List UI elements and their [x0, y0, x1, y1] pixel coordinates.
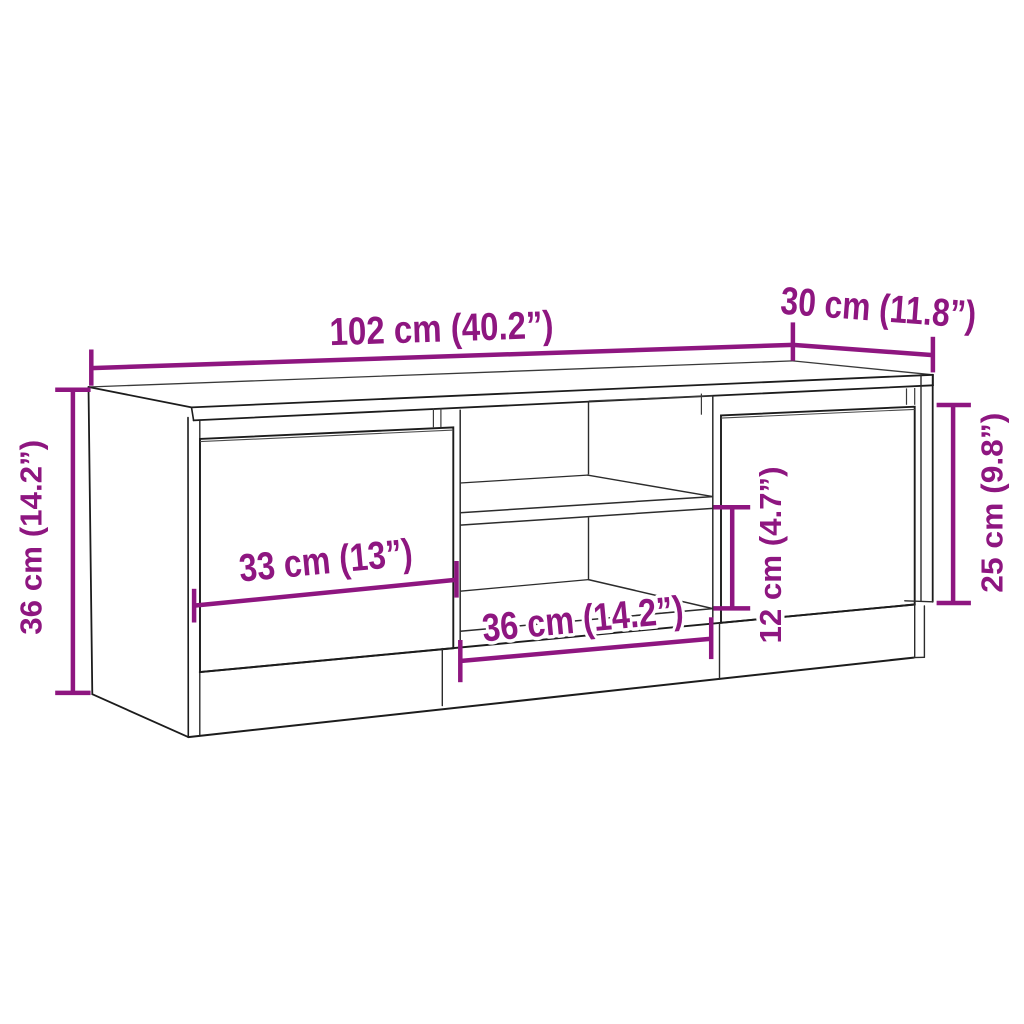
svg-text:36 cm (14.2”): 36 cm (14.2”)	[14, 440, 49, 635]
svg-text:102 cm (40.2”): 102 cm (40.2”)	[329, 304, 554, 354]
svg-text:25 cm (9.8”): 25 cm (9.8”)	[975, 413, 1010, 593]
svg-text:12 cm (4.7”): 12 cm (4.7”)	[753, 467, 788, 644]
